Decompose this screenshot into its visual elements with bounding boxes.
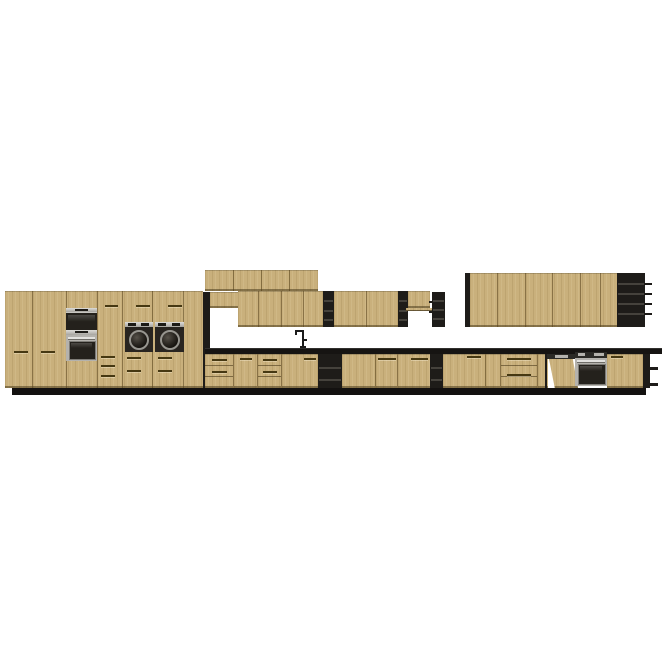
drawer-handle [263,371,277,373]
drawer-handle [263,359,277,361]
door-seam [303,291,304,327]
oven-display [75,309,88,311]
tap-spout-tip [295,330,297,335]
wall-cabinet-top-row [205,270,318,291]
tap-lever [304,339,307,341]
door-handle [240,358,252,360]
drawer-handle [212,359,227,361]
wall-cabinet-right-run [465,273,652,327]
lower-oven-door [66,335,97,361]
door-seam [600,273,601,327]
washer-porthole [129,330,149,350]
wall-cabinet-doors [334,291,398,327]
oven-buttons [578,353,585,356]
dishwasher-panel-door-ajar [549,359,578,388]
base-door [485,354,501,388]
door-seam [97,291,98,388]
door-seam [32,291,33,388]
open-shelf-unit [323,291,334,327]
shelf-tip [645,283,652,285]
door-seam [281,291,282,327]
oven-display [594,353,604,356]
open-shelf-unit [617,273,645,327]
built-in-double-oven [66,308,97,361]
open-shelf-unit [432,292,445,327]
kitchen-set-product-image [0,0,665,665]
tall-cabinet-unit [5,291,210,388]
base-door [607,354,643,388]
base-door [281,354,319,388]
door-seam [261,270,262,291]
upper-oven-door [66,312,97,332]
open-base-unit [318,354,342,388]
door-handle [411,358,428,360]
dishwasher-side [545,354,547,388]
door-seam [552,273,553,327]
door-handle [304,358,316,360]
drawer-handle [507,374,531,376]
door-handle [105,305,118,307]
wall-cabinet-doors [238,291,323,327]
door-seam [233,270,234,291]
door-seam [366,291,367,327]
door-handle [611,356,623,358]
shelf-tip [645,313,652,315]
wall-cabinet-doors [470,273,617,327]
shelf-tip [429,311,432,313]
drawer-stack [205,354,233,388]
oven-handle-bar [68,337,95,339]
washing-machine [125,322,153,352]
dishwasher-display [555,355,568,358]
oven-glass [578,364,606,385]
plinth [12,388,646,395]
open-base-unit [430,354,443,388]
oven-control-panel [575,352,607,358]
base-door [233,354,258,388]
door-handle [467,356,481,358]
shelf-tip [429,301,432,303]
door-seam [258,291,259,327]
drawer-stack [257,354,282,388]
door-handle [378,358,396,360]
washing-machine [155,322,184,352]
base-door [397,354,431,388]
washer-body [125,327,153,352]
shelf-tip [650,367,658,370]
door-seam [525,273,526,327]
base-run-end-panel [643,354,650,388]
drawer-handle [127,357,141,359]
oven-handle-bar [577,360,605,362]
drawer-handle [101,365,115,367]
shelf-tip [645,293,652,295]
door-seam [580,273,581,327]
short-wall-cabinet [408,291,430,308]
door-seam [497,273,498,327]
washer-porthole [160,330,180,350]
short-wall-cabinet [210,292,238,308]
door-handle [168,305,182,307]
drawer-stack [500,354,538,388]
base-door [443,354,485,388]
door-seam [289,270,290,291]
drawer-handle [212,371,227,373]
base-door [375,354,398,388]
base-door [342,354,375,388]
shelf-tip [650,383,658,386]
wall-cabinet-mid-row [205,291,450,329]
door-handle [41,351,55,353]
oven-display [75,331,88,333]
dishwasher-control-panel [547,354,575,359]
drawer-handle [101,356,115,358]
drawer-handle [101,375,115,377]
built-in-oven [575,358,607,386]
door-handle [14,351,28,353]
drawer-handle [158,357,172,359]
door-handle [136,305,150,307]
shelf-tip [645,303,652,305]
base-cabinet-run [205,354,650,388]
oven-glass [69,341,96,360]
drawer-handle [158,370,172,372]
washer-body [155,327,184,352]
sink-mixer-tap [295,328,309,350]
drawer-handle [507,358,531,360]
door-seam [122,291,123,388]
drawer-handle [127,370,141,372]
